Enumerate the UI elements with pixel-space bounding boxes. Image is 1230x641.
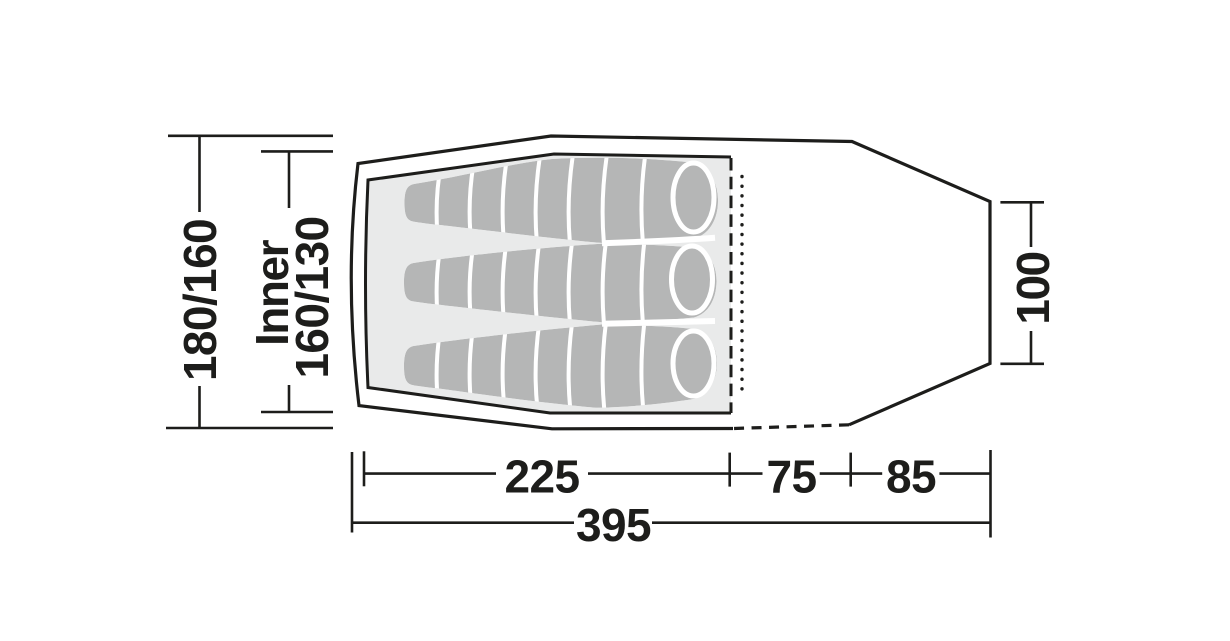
svg-text:75: 75: [767, 451, 817, 503]
svg-text:85: 85: [886, 451, 936, 503]
svg-text:100: 100: [1007, 252, 1059, 324]
svg-text:160/130: 160/130: [286, 216, 338, 378]
svg-text:180/160: 180/160: [174, 219, 226, 381]
svg-text:225: 225: [505, 451, 580, 503]
svg-text:395: 395: [576, 499, 651, 551]
